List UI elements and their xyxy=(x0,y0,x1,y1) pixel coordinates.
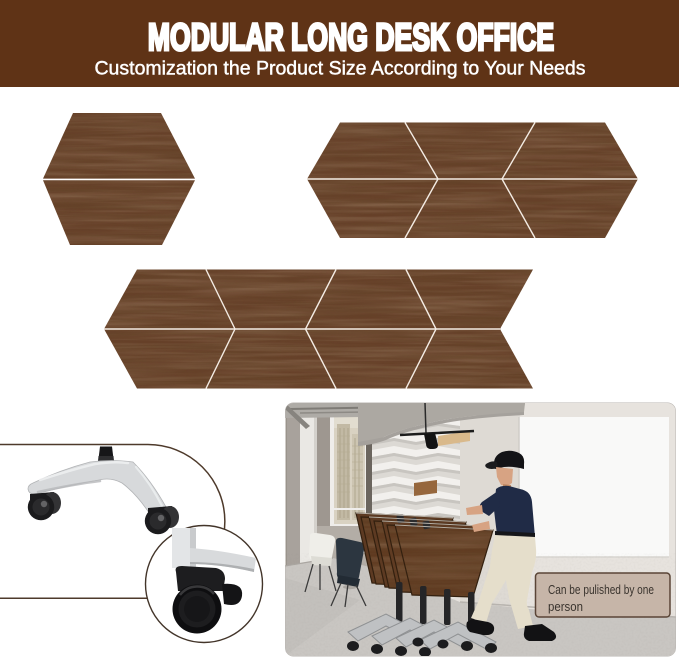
svg-text:MODULAR LONG DESK OFFICE: MODULAR LONG DESK OFFICE xyxy=(148,15,554,58)
svg-text:Customization the Product Size: Customization the Product Size According… xyxy=(94,58,585,80)
svg-text:Can be pulished by one: Can be pulished by one xyxy=(548,582,654,597)
svg-text:person: person xyxy=(548,599,583,614)
